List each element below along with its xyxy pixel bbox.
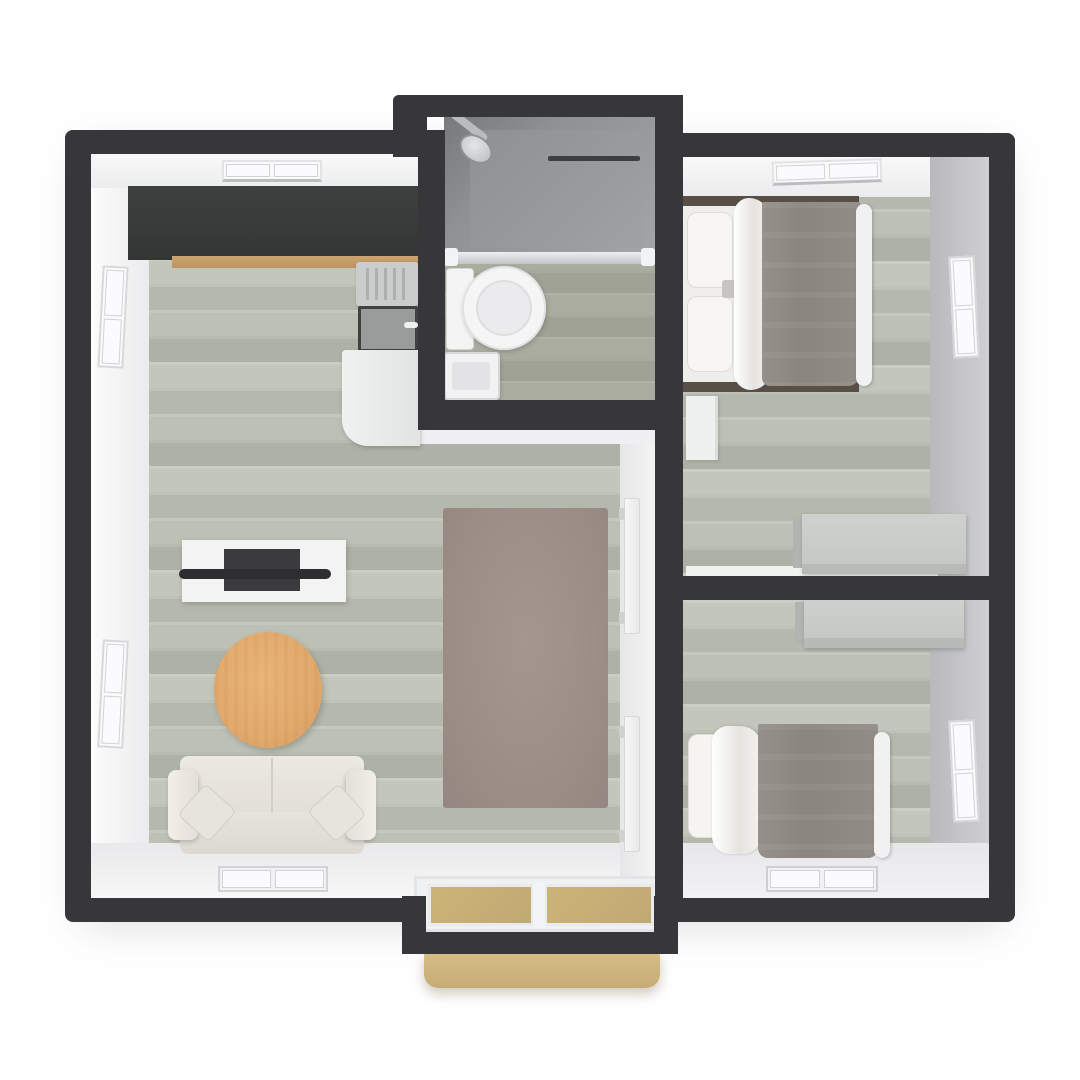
tv-panel-bar	[179, 569, 331, 579]
door-hinge	[619, 612, 625, 624]
window-pane	[101, 695, 122, 744]
bed2-blanket	[758, 724, 878, 858]
floor-plan-canvas	[0, 0, 1080, 1080]
door-hinge	[619, 726, 625, 738]
window-left-upper	[97, 265, 128, 368]
bedroom1-nightstand	[686, 396, 718, 460]
kitchen-sink	[358, 306, 418, 352]
wall-entry-bottom	[402, 932, 678, 954]
window-pane	[955, 308, 975, 354]
window-pane	[953, 724, 973, 770]
wall-interior-divider-vertical	[655, 95, 683, 920]
window-bottom-living	[218, 866, 328, 892]
wall-right-exterior	[989, 133, 1015, 920]
wall-top-exterior-left	[65, 130, 427, 154]
window-pane	[226, 164, 270, 177]
bed2-sheet-fold	[712, 726, 762, 854]
area-rug	[443, 508, 608, 808]
bed1-blanket	[762, 202, 860, 386]
toilet-seat	[476, 280, 532, 336]
entry-step-mat	[424, 952, 660, 988]
shower-glass-end-cap	[641, 248, 655, 266]
window-top-bedroom1	[772, 158, 883, 186]
kitchen-faucet	[404, 322, 418, 328]
entry-door-divider	[533, 882, 545, 928]
towel-bar	[548, 156, 640, 161]
window-pane	[829, 162, 878, 179]
entry-glass-panel-right	[544, 884, 654, 926]
shower-glass-partition	[444, 252, 655, 264]
window-right-bedroom1	[948, 255, 979, 358]
bed1-side-rail	[856, 204, 872, 386]
wall-bathroom-left	[418, 130, 445, 430]
wall-top-exterior-right	[678, 133, 1015, 157]
wall-bottom-exterior-right	[666, 898, 1015, 922]
bathroom-sink-basin	[452, 362, 490, 390]
wall-bottom-exterior-left	[65, 898, 417, 922]
bedroom1-door	[624, 498, 640, 634]
kitchen-counter-dark	[128, 186, 420, 260]
bed1-pillow	[687, 296, 733, 372]
door-hinge	[619, 508, 625, 520]
window-pane	[274, 164, 318, 177]
hallway-wall-face-top	[418, 428, 658, 444]
bed1-pillow	[687, 212, 733, 288]
wall-bedroom-divider	[683, 576, 989, 600]
sofa-cushion-split	[271, 758, 273, 812]
bedroom2-door	[624, 716, 640, 852]
window-pane	[955, 772, 975, 818]
window-pane	[275, 870, 324, 888]
coffee-table	[214, 632, 322, 748]
stove-grill-lines	[366, 268, 410, 300]
window-bottom-bedroom2	[766, 866, 878, 892]
shower-stall-basin	[470, 130, 642, 248]
bed2-side-rail	[874, 732, 890, 858]
wall-bathroom-bottom	[418, 400, 658, 430]
window-pane	[824, 870, 874, 888]
window-pane	[770, 870, 820, 888]
kitchen-counter-white	[342, 350, 420, 446]
window-pane	[104, 644, 125, 693]
window-pane	[222, 870, 271, 888]
bedroom2-desk	[804, 598, 964, 648]
wall-bathroom-bump-top	[393, 95, 683, 117]
wall-left-exterior	[65, 130, 91, 920]
shower-glass-end-cap	[444, 248, 458, 266]
bedroom1-desk	[802, 514, 966, 574]
window-pane	[776, 164, 825, 181]
entry-glass-panel-left	[428, 884, 534, 926]
window-pane	[953, 260, 973, 306]
door-hinge	[619, 830, 625, 842]
window-top-living	[222, 160, 322, 182]
window-pane	[102, 318, 122, 364]
window-right-bedroom2	[948, 719, 979, 822]
window-pane	[104, 270, 124, 316]
